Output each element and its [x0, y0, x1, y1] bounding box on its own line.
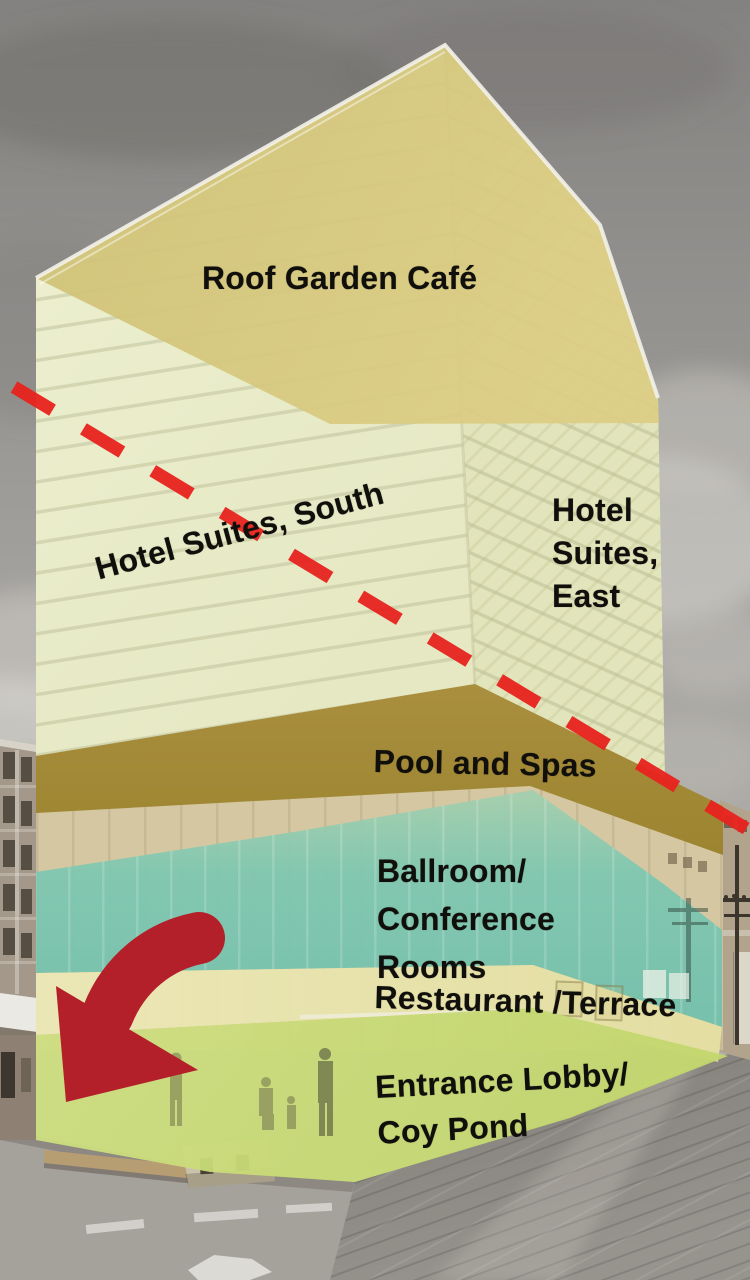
label-pool-and-spas: Pool and Spas: [373, 745, 597, 783]
building-awning: [0, 993, 37, 1040]
label-line: Suites,: [552, 532, 658, 575]
background-street-buildings: [720, 800, 750, 1060]
label-hotel-suites-east: Hotel Suites, East: [552, 489, 658, 618]
label-line: East: [552, 575, 658, 618]
label-ballroom-conference-rooms: Ballroom/ Conference Rooms: [377, 847, 555, 991]
left-street-building: [0, 739, 37, 1140]
label-line: Hotel: [552, 489, 658, 532]
label-line: Conference: [377, 895, 555, 943]
label-entrance-lobby-coy-pond: Entrance Lobby/ Coy Pond: [374, 1051, 632, 1156]
label-line: Ballroom/: [377, 847, 555, 895]
label-roof-garden-cafe: Roof Garden Café: [202, 262, 477, 296]
diagram-stage: Roof Garden Café Hotel Suites, South Hot…: [0, 0, 750, 1280]
